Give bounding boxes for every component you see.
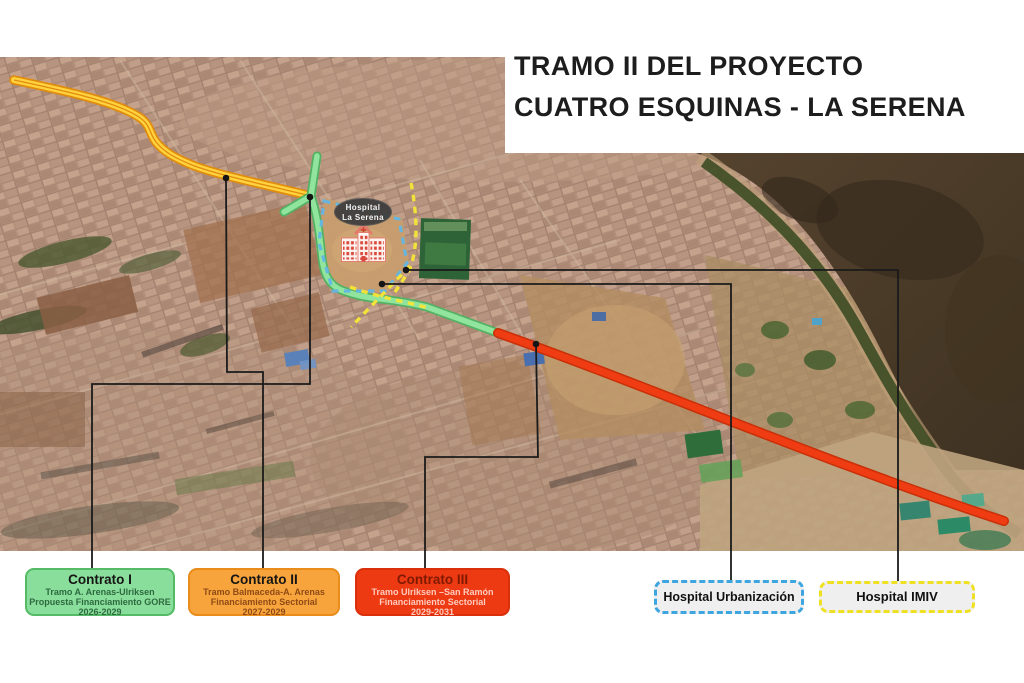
contrato-1-line2: Propuesta Financiamiento GORE xyxy=(27,597,173,607)
contrato-3-line3: 2029-2031 xyxy=(357,607,508,617)
contrato-2-title: Contrato II xyxy=(190,572,338,587)
title-box: TRAMO II DEL PROYECTO CUATRO ESQUINAS - … xyxy=(505,40,1024,153)
contrato-3-line1: Tramo Ulriksen –San Ramón xyxy=(357,587,508,597)
legend-hospital-urbanizacion: Hospital Urbanización xyxy=(654,580,804,614)
legend-contrato-3: Contrato III Tramo Ulriksen –San Ramón F… xyxy=(355,568,510,616)
legend-hospital-imiv: Hospital IMIV xyxy=(819,581,975,613)
title-line2: CUATRO ESQUINAS - LA SERENA xyxy=(505,87,1024,128)
hospital-label-line2: La Serena xyxy=(342,213,384,222)
contrato-1-line3: 2026-2029 xyxy=(27,607,173,617)
contrato-2-line3: 2027-2029 xyxy=(190,607,338,617)
legend-contrato-1: Contrato I Tramo A. Arenas-Ulriksen Prop… xyxy=(25,568,175,616)
slide: Hospital La Serena TRAMO II DEL PROYECTO… xyxy=(0,0,1024,683)
hospital-label-line1: Hospital xyxy=(346,203,381,212)
contrato-1-title: Contrato I xyxy=(27,572,173,587)
contrato-1-line1: Tramo A. Arenas-Ulriksen xyxy=(27,587,173,597)
contrato-3-title: Contrato III xyxy=(357,572,508,587)
hospital-map-label: Hospital La Serena xyxy=(335,199,392,226)
contrato-3-line2: Financiamiento Sectorial xyxy=(357,597,508,607)
title-line1: TRAMO II DEL PROYECTO xyxy=(505,40,1024,87)
hospital-imiv-label: Hospital IMIV xyxy=(856,589,938,604)
contrato-2-line1: Tramo Balmaceda-A. Arenas xyxy=(190,587,338,597)
legend-contrato-2: Contrato II Tramo Balmaceda-A. Arenas Fi… xyxy=(188,568,340,616)
contrato-2-line2: Financiamiento Sectorial xyxy=(190,597,338,607)
hospital-urbanizacion-label: Hospital Urbanización xyxy=(663,590,794,604)
